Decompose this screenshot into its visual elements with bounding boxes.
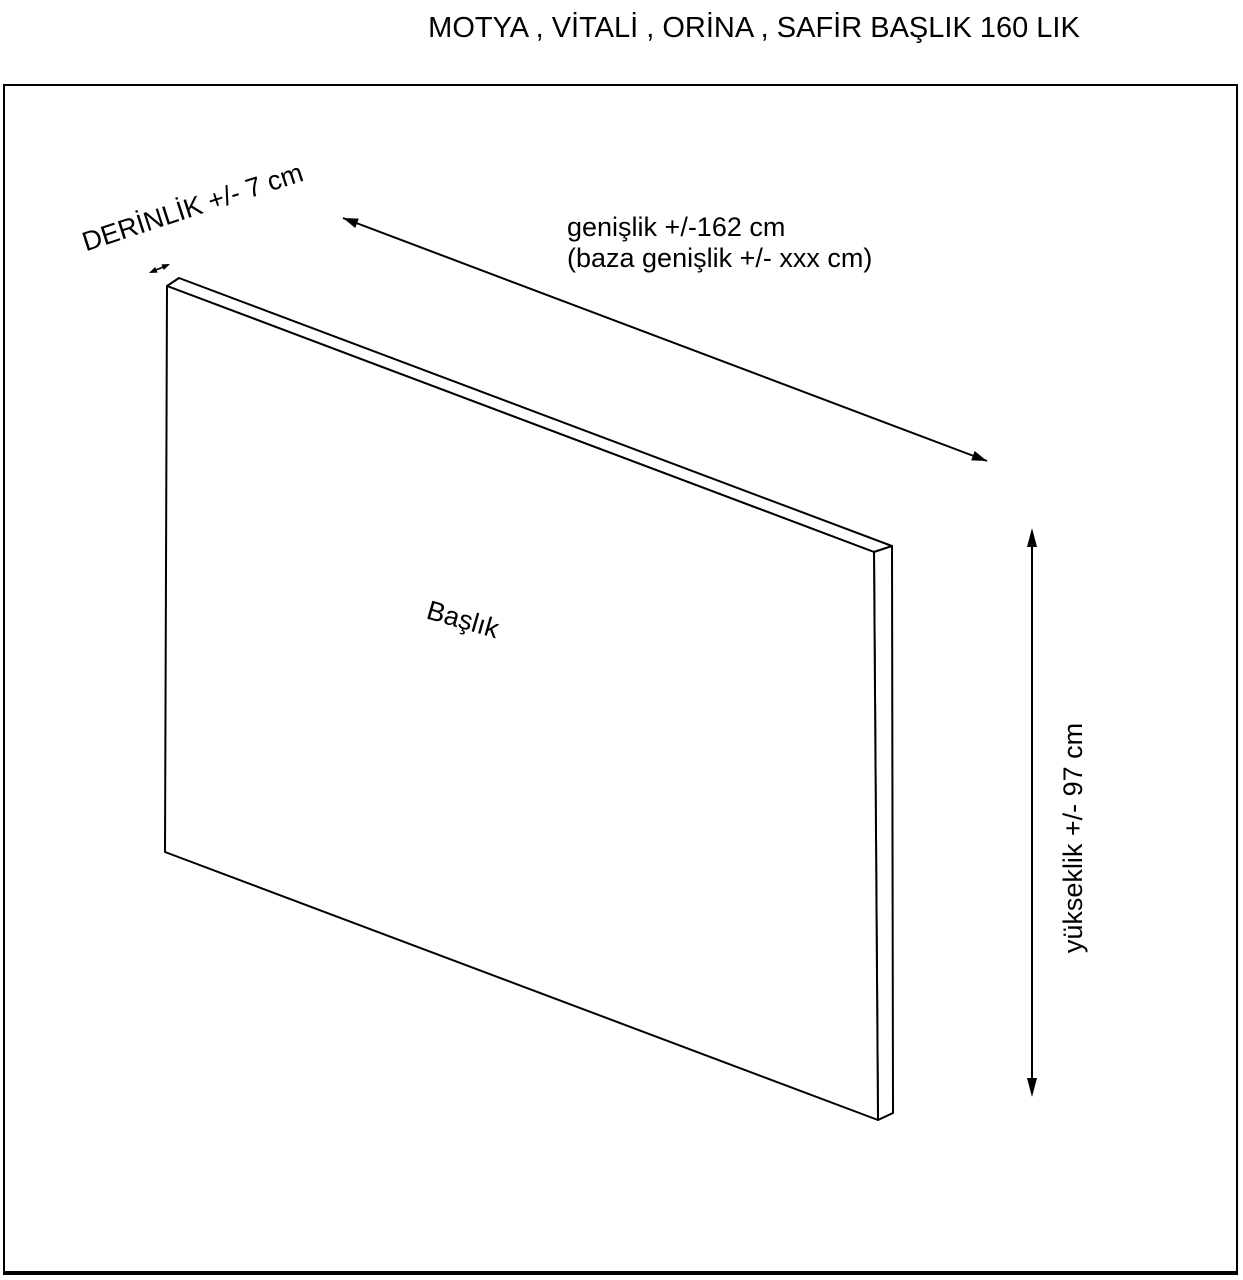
width-dimension-line2: (baza genişlik +/- xxx cm) bbox=[567, 243, 872, 274]
technical-drawing-page: MOTYA , VİTALİ , ORİNA , SAFİR BAŞLIK 16… bbox=[0, 0, 1243, 1280]
width-dimension-line1: genişlik +/-162 cm bbox=[567, 212, 872, 243]
height-arrow bbox=[1027, 528, 1037, 1097]
depth-arrow bbox=[149, 264, 170, 273]
width-dimension-label: genişlik +/-162 cm (baza genişlik +/- xx… bbox=[567, 212, 872, 274]
height-dimension-label: yükseklik +/- 97 cm bbox=[1057, 700, 1089, 976]
